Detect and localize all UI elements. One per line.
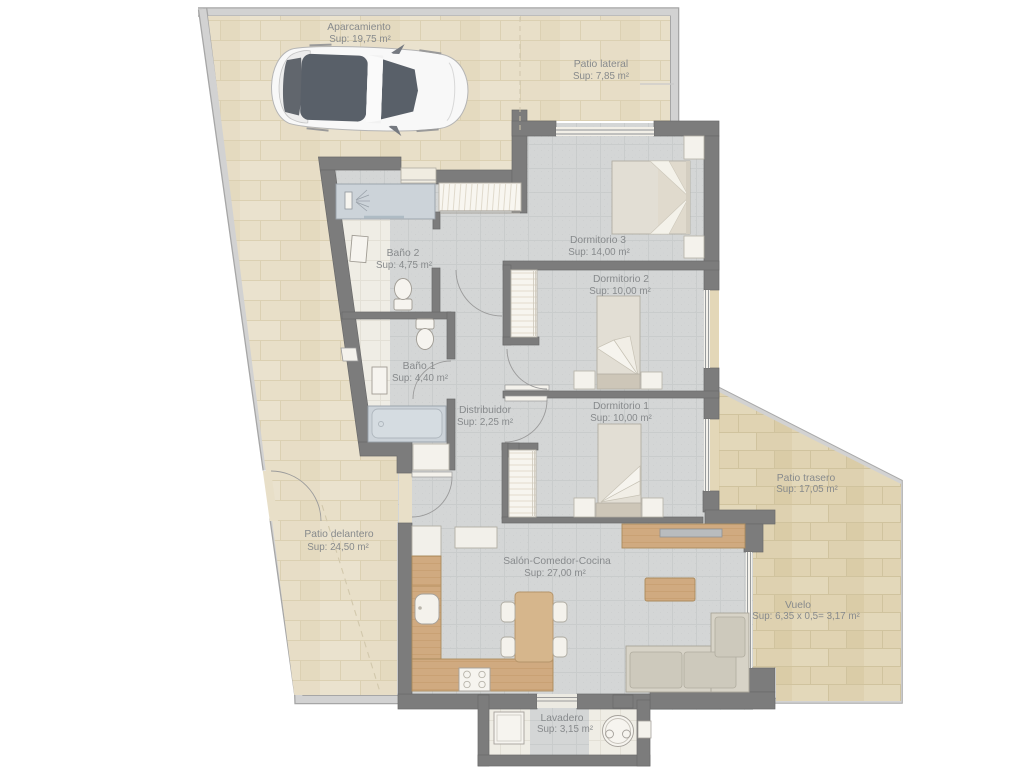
svg-text:Distribuidor: Distribuidor: [459, 405, 512, 416]
svg-text:Sup: 10,00 m²: Sup: 10,00 m²: [589, 286, 651, 297]
svg-text:Aparcamiento: Aparcamiento: [327, 22, 391, 33]
svg-text:Sup: 3,15 m²: Sup: 3,15 m²: [537, 724, 594, 735]
svg-text:Baño 1: Baño 1: [403, 361, 436, 372]
svg-text:Sup: 2,25 m²: Sup: 2,25 m²: [457, 417, 514, 428]
svg-text:Sup: 7,85 m²: Sup: 7,85 m²: [573, 71, 630, 82]
svg-text:Sup: 27,00 m²: Sup: 27,00 m²: [524, 568, 586, 579]
svg-text:Lavadero: Lavadero: [541, 713, 584, 724]
svg-text:Dormitorio 2: Dormitorio 2: [593, 274, 649, 285]
svg-text:Patio trasero: Patio trasero: [777, 473, 836, 484]
svg-text:Sup: 19,75 m²: Sup: 19,75 m²: [329, 34, 391, 45]
svg-text:Patio delantero: Patio delantero: [304, 529, 374, 540]
svg-text:Sup: 24,50 m²: Sup: 24,50 m²: [307, 542, 369, 553]
svg-text:Salón-Comedor-Cocina: Salón-Comedor-Cocina: [503, 556, 611, 567]
svg-text:Sup: 17,05 m²: Sup: 17,05 m²: [776, 484, 838, 495]
svg-text:Patio lateral: Patio lateral: [574, 59, 628, 70]
svg-text:Vuelo: Vuelo: [785, 600, 811, 611]
svg-text:Sup: 10,00 m²: Sup: 10,00 m²: [590, 413, 652, 424]
svg-text:Sup: 4,40 m²: Sup: 4,40 m²: [392, 373, 449, 384]
svg-text:Baño 2: Baño 2: [387, 248, 420, 259]
svg-text:Dormitorio 3: Dormitorio 3: [570, 235, 626, 246]
svg-text:Dormitorio 1: Dormitorio 1: [593, 401, 649, 412]
svg-text:Sup: 14,00 m²: Sup: 14,00 m²: [568, 247, 630, 258]
svg-text:Sup: 6,35 x 0,5= 3,17 m²: Sup: 6,35 x 0,5= 3,17 m²: [752, 611, 860, 622]
svg-text:Sup: 4,75 m²: Sup: 4,75 m²: [376, 260, 433, 271]
